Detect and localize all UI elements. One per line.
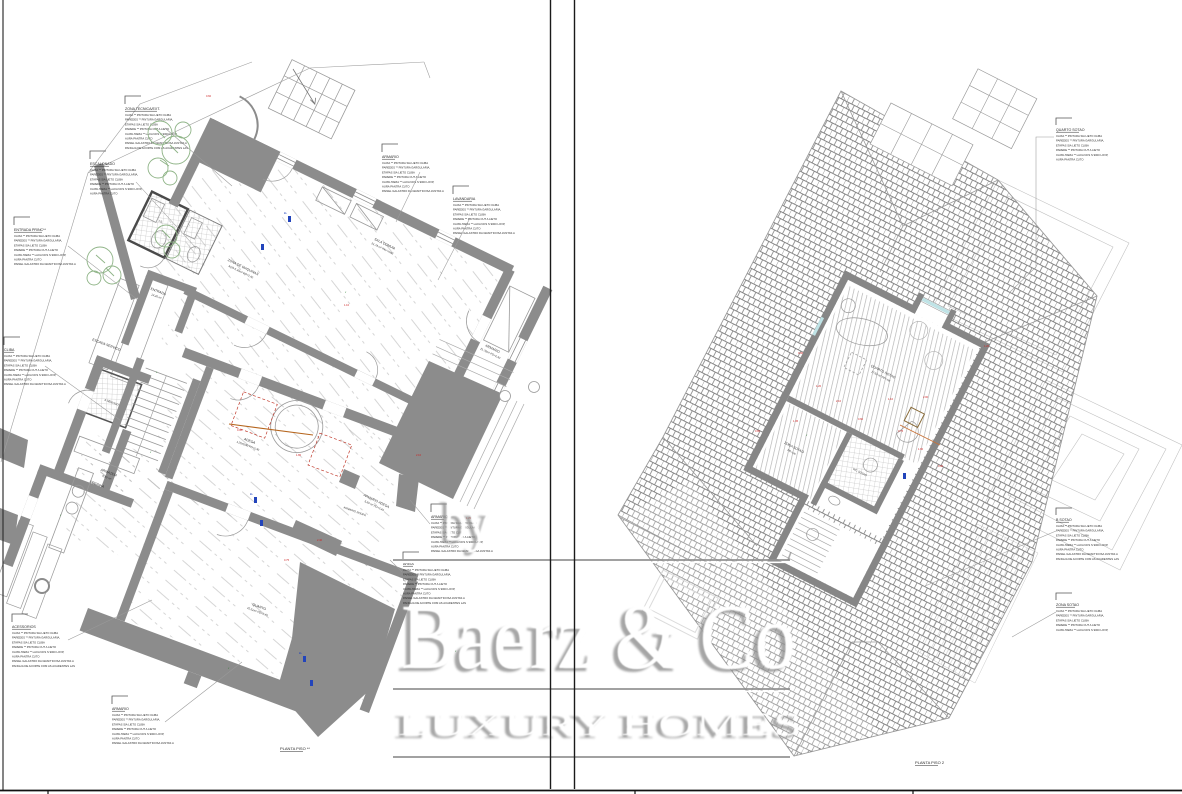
svg-text:ESCALONADO: ESCALONADO: [90, 162, 115, 166]
svg-text:Baerz & Co: Baerz & Co: [401, 586, 796, 689]
svg-text:PLANTA PISO 2: PLANTA PISO 2: [915, 760, 945, 765]
svg-text:1.80: 1.80: [296, 453, 302, 457]
svg-text:by: by: [444, 488, 491, 553]
svg-text:CAIXA ** PINTURA SIA LIETO CLI: CAIXA ** PINTURA SIA LIETO CLIBA: [382, 161, 428, 165]
svg-text:PAREDE ** PINTURA CUT A LIETO: PAREDE ** PINTURA CUT A LIETO: [90, 182, 134, 186]
svg-text:AURA PANTRA CUTO: AURA PANTRA CUTO: [90, 192, 118, 196]
svg-text:0.90: 0.90: [938, 464, 944, 468]
svg-text:PAREDES ** PINTURA GARGULARIA,: PAREDES ** PINTURA GARGULARIA,: [453, 208, 501, 212]
svg-text:CAIXA ** PINTURA SIA LIETO CLI: CAIXA ** PINTURA SIA LIETO CLIBA: [1056, 609, 1102, 613]
svg-text:CAIXILHARIA ** LACA NCS S 9000: CAIXILHARIA ** LACA NCS S 9000 LOVP,: [90, 187, 142, 191]
svg-text:ETAPAS SIA LIETO CLIBA: ETAPAS SIA LIETO CLIBA: [14, 243, 47, 247]
svg-text:CAIXILHARIA ** LACA NCS S 9000: CAIXILHARIA ** LACA NCS S 9000 LOVP,: [382, 180, 434, 184]
svg-text:ETAPAS SIA LIETO CLIBA: ETAPAS SIA LIETO CLIBA: [1056, 143, 1089, 147]
svg-text:ETAPAS SIA LIETO CLIBA: ETAPAS SIA LIETO CLIBA: [382, 170, 415, 174]
svg-text:2.10: 2.10: [836, 399, 842, 403]
svg-text:QUARTO SOTAO: QUARTO SOTAO: [1056, 128, 1085, 132]
svg-text:CAIXILHARIA ** LACA NCS S 9000: CAIXILHARIA ** LACA NCS S 9000 LOVP,: [453, 222, 505, 226]
svg-text:1.45: 1.45: [793, 419, 799, 423]
svg-text:ETAPAS SIA LIETO CLIBA: ETAPAS SIA LIETO CLIBA: [1056, 618, 1089, 622]
svg-text:ETAPAS SIA LIETO CLIBA: ETAPAS SIA LIETO CLIBA: [4, 363, 37, 367]
svg-text:LUXURY HOMES: LUXURY HOMES: [398, 707, 802, 743]
svg-text:PAREDE ** PINTURA CUT A LIETO: PAREDE ** PINTURA CUT A LIETO: [112, 727, 156, 731]
svg-text:PAREDE ** PINTURA CUT A LIETO: PAREDE ** PINTURA CUT A LIETO: [1056, 623, 1100, 627]
svg-text:PAREDES ** PINTURA GARGULARIA,: PAREDES ** PINTURA GARGULARIA,: [12, 636, 60, 640]
svg-text:CAIXA ** PINTURA SIA LIETO CLI: CAIXA ** PINTURA SIA LIETO CLIBA: [12, 631, 58, 635]
svg-text:PAREDE ** PINTURA CUT A LIETO: PAREDE ** PINTURA CUT A LIETO: [12, 645, 56, 649]
svg-text:0.75: 0.75: [284, 558, 290, 562]
svg-text:CAIXILHARIA ** LACA NCS S 9000: CAIXILHARIA ** LACA NCS S 9000 LOVP,: [12, 650, 64, 654]
svg-text:1.60: 1.60: [918, 447, 924, 451]
svg-text:AURA PANTRA CUTO: AURA PANTRA CUTO: [1056, 548, 1084, 552]
svg-text:1.10: 1.10: [344, 303, 350, 307]
svg-text:PAREDE ** PINTURA CUT A LIETO: PAREDE ** PINTURA CUT A LIETO: [1056, 538, 1100, 542]
svg-text:ARMARIO: ARMARIO: [112, 707, 129, 711]
svg-text:PAREDE ** PINTURA CUT A LIETO: PAREDE ** PINTURA CUT A LIETO: [4, 368, 48, 372]
svg-text:ETAPAS SIA LIETO CLIBA: ETAPAS SIA LIETO CLIBA: [403, 577, 436, 581]
svg-text:PLANTA PISO **: PLANTA PISO **: [280, 746, 310, 751]
svg-text:AURA PANTRA CUTO: AURA PANTRA CUTO: [12, 655, 40, 659]
svg-text:CAIXA ** PINTURA SIA LIETO CLI: CAIXA ** PINTURA SIA LIETO CLIBA: [1056, 524, 1102, 528]
svg-text:PAREDES ** PINTURA GARGULARIA,: PAREDES ** PINTURA GARGULARIA,: [382, 166, 430, 170]
svg-text:CAIXA ** PINTURA SIA LIETO CLI: CAIXA ** PINTURA SIA LIETO CLIBA: [1056, 134, 1102, 138]
svg-text:PAREDES ** PINTURA GARGULARIA,: PAREDES ** PINTURA GARGULARIA,: [125, 118, 173, 122]
svg-text:0.80: 0.80: [755, 429, 761, 433]
svg-text:PAINEL GALASTRO DA GRAFTICOSA: PAINEL GALASTRO DA GRAFTICOSA JUNTAS A: [12, 659, 74, 663]
svg-text:2.00: 2.00: [923, 395, 929, 399]
svg-text:0.60: 0.60: [858, 417, 864, 421]
svg-text:PAINEL GALASTRO DA GRAFTICOSA: PAINEL GALASTRO DA GRAFTICOSA JUNTAS A: [1056, 552, 1118, 556]
svg-text:AURA PANTRA CUTO: AURA PANTRA CUTO: [14, 258, 42, 262]
svg-text:PAREDE ** PINTURA CUT A LIETO: PAREDE ** PINTURA CUT A LIETO: [14, 248, 58, 252]
svg-text:PAREDES ** PINTURA GARGULARIA,: PAREDES ** PINTURA GARGULARIA,: [14, 239, 62, 243]
svg-text:AURA PANTRA CUTO: AURA PANTRA CUTO: [4, 378, 32, 382]
svg-text:PAINEL GALASTRO DA GRAFTICOSA: PAINEL GALASTRO DA GRAFTICOSA JUNTAS A: [14, 262, 76, 266]
svg-text:0.90: 0.90: [237, 428, 243, 432]
svg-text:CLIBA: CLIBA: [4, 348, 15, 352]
svg-text:AURA PANTRA CUTO: AURA PANTRA CUTO: [453, 227, 481, 231]
svg-text:ETAPAS SIA LIETO CLIBA: ETAPAS SIA LIETO CLIBA: [112, 722, 145, 726]
svg-text:PAINEL GALASTRO DA GRAFTICOSA: PAINEL GALASTRO DA GRAFTICOSA JUNTAS A: [112, 741, 174, 745]
svg-text:PAREDES ** PINTURA GARGULARIA,: PAREDES ** PINTURA GARGULARIA,: [4, 359, 52, 363]
svg-text:ETAPAS SIA LIETO CLIBA: ETAPAS SIA LIETO CLIBA: [12, 640, 45, 644]
svg-text:CAIXA ** PINTURA SIA LIETO CLI: CAIXA ** PINTURA SIA LIETO CLIBA: [403, 568, 449, 572]
svg-text:CAIXILHARIA ** LACA NCS S 9000: CAIXILHARIA ** LACA NCS S 9000 LOVP,: [1056, 153, 1108, 157]
svg-text:2.40: 2.40: [317, 538, 323, 542]
svg-text:PANGLIA DE ACORTE COM AS ACADE: PANGLIA DE ACORTE COM AS ACADENTES LAS: [125, 146, 188, 150]
svg-text:CAIXA ** PINTURA SIA LIETO CLI: CAIXA ** PINTURA SIA LIETO CLIBA: [112, 713, 158, 717]
svg-text:CAIXA ** PINTURA SIA LIETO CLI: CAIXA ** PINTURA SIA LIETO CLIBA: [125, 113, 171, 117]
svg-text:2.10: 2.10: [416, 453, 422, 457]
svg-text:1.20: 1.20: [816, 384, 822, 388]
svg-text:AURA PANTRA CUTO: AURA PANTRA CUTO: [112, 737, 140, 741]
svg-text:ETAPAS SIA LIETO CLIBA: ETAPAS SIA LIETO CLIBA: [90, 177, 123, 181]
svg-text:ZONA TECNICA/EXT.: ZONA TECNICA/EXT.: [125, 107, 160, 111]
svg-text:PAREDE ** PINTURA CUT A LIETO: PAREDE ** PINTURA CUT A LIETO: [453, 217, 497, 221]
svg-text:PAREDES ** PINTURA GARGULARIA,: PAREDES ** PINTURA GARGULARIA,: [1056, 529, 1104, 533]
svg-text:CAIXILHARIA ** LACA NCS S 9000: CAIXILHARIA ** LACA NCS S 9000 LOVP,: [1056, 628, 1108, 632]
svg-text:PAREDES ** PINTURA GARGULARIA,: PAREDES ** PINTURA GARGULARIA,: [1056, 139, 1104, 143]
svg-text:CAIXA ** PINTURA SIA LIETO CLI: CAIXA ** PINTURA SIA LIETO CLIBA: [90, 168, 136, 172]
svg-text:PAREDE ** PINTURA CUT A LIETO: PAREDE ** PINTURA CUT A LIETO: [125, 127, 169, 131]
svg-text:PAREDES ** PINTURA GARGULARIA,: PAREDES ** PINTURA GARGULARIA,: [403, 573, 451, 577]
svg-text:PANGLIA DE ACORTE COM AS ACADE: PANGLIA DE ACORTE COM AS ACADENTES LAS: [12, 664, 75, 668]
svg-text:1.20: 1.20: [984, 344, 990, 348]
svg-text:CAIXA ** PINTURA SIA LIETO CLI: CAIXA ** PINTURA SIA LIETO CLIBA: [14, 234, 60, 238]
svg-text:CAIXILHARIA ** LACA NCS S 9000: CAIXILHARIA ** LACA NCS S 9000 LOVP,: [125, 132, 177, 136]
svg-text:PAREDE ** PINTURA CUT A LIETO: PAREDE ** PINTURA CUT A LIETO: [382, 175, 426, 179]
svg-text:ACESSORIOS: ACESSORIOS: [12, 625, 36, 629]
svg-text:PAINEL GALASTRO DA GRAFTICOSA: PAINEL GALASTRO DA GRAFTICOSA JUNTAS A: [4, 382, 66, 386]
svg-text:ETAPAS SIA LIETO CLIBA: ETAPAS SIA LIETO CLIBA: [453, 212, 486, 216]
svg-text:CAIXA ** PINTURA SIA LIETO CLI: CAIXA ** PINTURA SIA LIETO CLIBA: [4, 354, 50, 358]
svg-text:AURA PANTRA CUTO: AURA PANTRA CUTO: [1056, 158, 1084, 162]
svg-text:ETAPAS SIA LIETO CLIBA: ETAPAS SIA LIETO CLIBA: [1056, 533, 1089, 537]
svg-text:AURA PANTRA CUTO: AURA PANTRA CUTO: [382, 185, 410, 189]
svg-text:PANGLIA DE ACORTE COM AS ACADE: PANGLIA DE ACORTE COM AS ACADENTES LAS: [1056, 557, 1119, 561]
svg-text:PAREDES ** PINTURA GARGULARIA,: PAREDES ** PINTURA GARGULARIA,: [1056, 614, 1104, 618]
svg-text:ARMARIO: ARMARIO: [382, 155, 399, 159]
svg-text:CAIXILHARIA ** LACA NCS S 9000: CAIXILHARIA ** LACA NCS S 9000 LOVP,: [14, 253, 66, 257]
svg-text:B SOTAO: B SOTAO: [1056, 518, 1072, 522]
svg-text:CAIXA ** PINTURA SIA LIETO CLI: CAIXA ** PINTURA SIA LIETO CLIBA: [453, 203, 499, 207]
svg-text:CAIXILHARIA ** LACA NCS S 9000: CAIXILHARIA ** LACA NCS S 9000 LOVP,: [4, 373, 56, 377]
svg-text:CAIXILHARIA ** LACA NCS S 9000: CAIXILHARIA ** LACA NCS S 9000 LOVP,: [112, 732, 164, 736]
svg-text:LAVANDARIA: LAVANDARIA: [453, 197, 476, 201]
svg-text:1.10: 1.10: [888, 397, 894, 401]
svg-text:CAIXILHARIA ** LACA NCS S 9000: CAIXILHARIA ** LACA NCS S 9000 LOVP,: [1056, 543, 1108, 547]
svg-text:0.60: 0.60: [206, 94, 212, 98]
svg-text:0.75: 0.75: [898, 429, 904, 433]
svg-text:0.90: 0.90: [798, 351, 804, 355]
svg-text:PAREDES ** PINTURA GARGULARIA,: PAREDES ** PINTURA GARGULARIA,: [90, 173, 138, 177]
svg-text:PAREDE ** PINTURA CUT A LIETO: PAREDE ** PINTURA CUT A LIETO: [1056, 148, 1100, 152]
svg-text:ZONA SOTAO: ZONA SOTAO: [1056, 603, 1079, 607]
svg-text:PAINEL GALASTRO DA GRAFTICOSA: PAINEL GALASTRO DA GRAFTICOSA JUNTAS A: [382, 189, 444, 193]
svg-text:PAREDES ** PINTURA GARGULARIA,: PAREDES ** PINTURA GARGULARIA,: [112, 718, 160, 722]
svg-text:ENTRADA PRINC**: ENTRADA PRINC**: [14, 228, 47, 232]
